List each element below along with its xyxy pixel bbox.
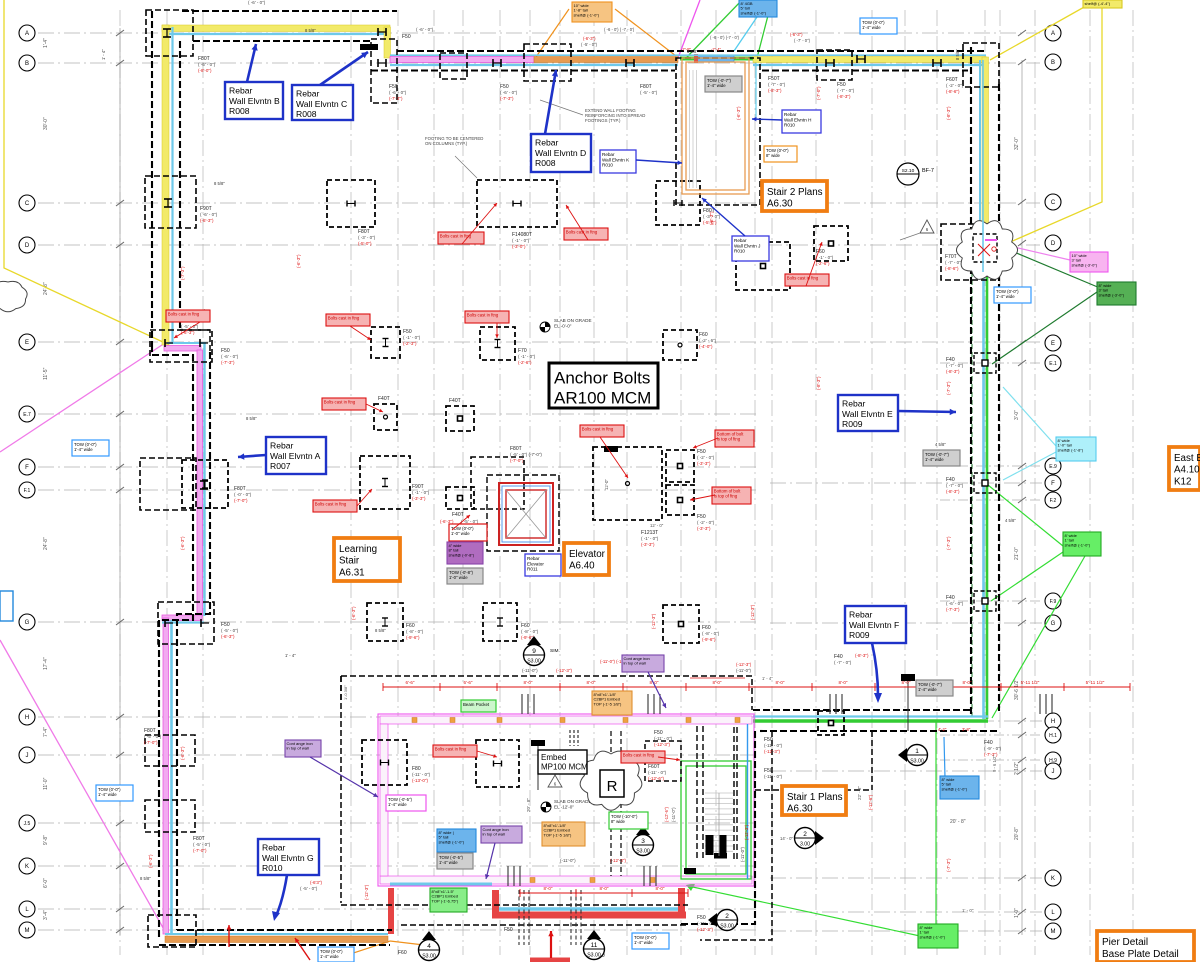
svg-text:R008: R008 — [229, 106, 250, 116]
svg-text:F40T: F40T — [452, 512, 464, 518]
svg-text:6'-0": 6'-0" — [43, 878, 49, 888]
svg-text:(-8'-3"): (-8'-3") — [837, 94, 851, 99]
svg-text:S2.10: S2.10 — [902, 168, 915, 174]
svg-text:11'-0": 11'-0" — [43, 777, 49, 790]
svg-text:Bolts cast in ftng: Bolts cast in ftng — [328, 316, 360, 321]
svg-text:R008: R008 — [296, 109, 317, 119]
svg-text:Elevator: Elevator — [527, 561, 544, 566]
svg-text:E.1: E.1 — [1049, 361, 1057, 367]
svg-text:TOP (-1'-6.75"): TOP (-1'-6.75") — [432, 898, 459, 903]
svg-text:Bolts cast in ftng: Bolts cast in ftng — [168, 312, 200, 317]
svg-text:S3.00: S3.00 — [422, 954, 436, 960]
svg-text:shelf@ (-3'-0"): shelf@ (-3'-0") — [1072, 262, 1098, 267]
svg-text:( -7' - 0"): ( -7' - 0") — [946, 363, 964, 368]
svg-text:(-8'-3"): (-8'-3") — [946, 106, 951, 120]
svg-text:TOP (-1'-5 1/8"): TOP (-1'-5 1/8") — [544, 832, 572, 837]
svg-text:F40T: F40T — [378, 396, 390, 402]
svg-text:(-6'-3"): (-6'-3") — [200, 218, 214, 223]
svg-text:Bolts cast in ftng: Bolts cast in ftng — [582, 427, 614, 432]
svg-text:F50: F50 — [504, 927, 513, 933]
svg-text:8'-0": 8'-0" — [713, 680, 722, 685]
svg-text:8'-0": 8'-0" — [544, 886, 553, 891]
svg-text:G: G — [1051, 621, 1056, 627]
svg-text:1'-4" wide: 1'-4" wide — [918, 687, 937, 692]
svg-text:(-8'-0"): (-8'-0") — [198, 68, 212, 73]
svg-text:EL -12'-0": EL -12'-0" — [554, 804, 574, 809]
svg-text:(-9'-6"): (-9'-6") — [406, 635, 420, 640]
svg-text:(-11' - 0"): (-11' - 0") — [648, 770, 667, 775]
svg-text:E.9: E.9 — [1049, 464, 1057, 470]
svg-text:shelf@ (-1'-0"): shelf@ (-1'-0") — [1065, 542, 1091, 547]
svg-text:(-12'-3"): (-12'-3") — [764, 749, 780, 754]
svg-text:20' - 8": 20' - 8" — [950, 819, 966, 825]
svg-text:F: F — [25, 465, 29, 471]
svg-text:6'-6": 6'-6" — [406, 680, 415, 685]
svg-text:Wall Elvntn G: Wall Elvntn G — [262, 853, 314, 863]
svg-text:(-8'-3"): (-8'-3") — [816, 376, 821, 390]
svg-text:20' - 8": 20' - 8" — [526, 798, 531, 812]
svg-text:Wall Elvntn K: Wall Elvntn K — [602, 157, 630, 162]
svg-text:( -1' - 0"): ( -1' - 0") — [816, 255, 834, 260]
svg-text:( -8' - 0"): ( -8' - 0") — [521, 629, 539, 634]
svg-text:( -3' - 0"): ( -3' - 0") — [358, 235, 376, 240]
svg-text:Bolts cast in ftng: Bolts cast in ftng — [467, 313, 499, 318]
svg-text:Anchor Bolts: Anchor Bolts — [554, 368, 650, 387]
svg-text:(-9'-6"): (-9'-6") — [702, 637, 716, 642]
svg-text:R010: R010 — [602, 163, 613, 168]
svg-text:Bolts cast in ftng: Bolts cast in ftng — [315, 502, 347, 507]
svg-text:shelf@ (-3'-0"): shelf@ (-3'-0") — [1099, 292, 1125, 297]
svg-text:Rebar: Rebar — [734, 238, 747, 243]
svg-text:A6.40: A6.40 — [569, 561, 595, 572]
svg-text:(-6'-3"): (-6'-3") — [148, 854, 153, 868]
svg-text:BF-7: BF-7 — [922, 168, 934, 174]
svg-text:(-7'-3"): (-7'-3") — [946, 536, 951, 550]
svg-text:(-11'-0"): (-11'-0") — [736, 668, 751, 673]
svg-text:Learning: Learning — [339, 544, 377, 555]
svg-text:(-11'-0"): (-11'-0") — [560, 858, 576, 863]
svg-text:(-12'-3"): (-12'-3") — [744, 824, 749, 840]
svg-text:3'-4": 3'-4" — [43, 910, 49, 920]
svg-text:(-6'-3"): (-6'-3") — [180, 536, 185, 550]
svg-text:is top of ftng: is top of ftng — [717, 437, 741, 442]
svg-text:1'-0": 1'-0" — [1014, 908, 1020, 918]
svg-text:(-3'-0"): (-3'-0") — [512, 244, 526, 249]
svg-text:FOOTINGS (TYP.): FOOTINGS (TYP.) — [585, 118, 621, 123]
svg-text:1'-4" wide: 1'-4" wide — [707, 83, 726, 88]
svg-text:(-5'-0"): (-5'-0") — [358, 241, 372, 246]
svg-text:C: C — [1051, 200, 1056, 206]
svg-text:8'-0": 8'-0" — [656, 886, 665, 891]
svg-text:1'-4" wide: 1'-4" wide — [634, 940, 653, 945]
svg-text:(-12'-3"): (-12'-3") — [364, 884, 369, 900]
svg-text:S3.00: S3.00 — [527, 659, 541, 665]
svg-text:(-8'-3"): (-8'-3") — [709, 211, 714, 225]
svg-text:1'-0 3/8": 1'-0 3/8" — [343, 685, 348, 700]
svg-text:(-12'-3"): (-12'-3") — [750, 604, 755, 620]
svg-text:J: J — [1052, 769, 1055, 775]
svg-text:ON COLUMNS (TYP.): ON COLUMNS (TYP.) — [425, 141, 468, 146]
svg-text:(-2'-6"): (-2'-6") — [816, 261, 830, 266]
svg-text:Bolts cast in ftng: Bolts cast in ftng — [324, 400, 356, 405]
svg-text:8'-0": 8'-0" — [902, 680, 911, 685]
svg-text:4: 4 — [427, 943, 431, 950]
svg-text:F40T: F40T — [449, 398, 461, 404]
svg-text:(-4'-0"): (-4'-0") — [699, 344, 713, 349]
svg-text:(-3'-3"): (-3'-3") — [697, 461, 711, 466]
svg-text:( -5' - 0"): ( -5' - 0") — [581, 42, 598, 47]
svg-text:12'-0": 12'-0" — [604, 479, 609, 490]
svg-text:( -6 - 0') ( -7 - 0'): ( -6 - 0') ( -7 - 0') — [604, 27, 635, 32]
svg-text:(-12'-6"): (-12'-6") — [868, 794, 873, 810]
svg-text:shelf@ (-0'-8"): shelf@ (-0'-8") — [449, 552, 475, 557]
svg-text:K: K — [25, 864, 29, 870]
svg-text:( -1' - 0"): ( -1' - 0") — [412, 490, 430, 495]
svg-text:MP100 MCM: MP100 MCM — [541, 762, 588, 771]
svg-text:R010: R010 — [262, 863, 283, 873]
svg-text:(-7'-3"): (-7'-3") — [500, 96, 514, 101]
svg-text:30'-6 1/2": 30'-6 1/2" — [1014, 679, 1020, 700]
svg-text:A6.31: A6.31 — [339, 567, 365, 578]
svg-text:(-8'-6"): (-8'-6") — [945, 266, 959, 271]
svg-text:(-7'-0"): (-7'-0") — [144, 740, 158, 745]
svg-text:Rebar: Rebar — [527, 556, 540, 561]
svg-text:S3.00: S3.00 — [587, 953, 601, 959]
svg-text:(-11' - 0"): (-11' - 0") — [764, 743, 783, 748]
svg-text:1'-4" wide: 1'-4" wide — [98, 792, 117, 797]
svg-text:R009: R009 — [849, 630, 870, 640]
svg-text:8 5/8": 8 5/8" — [246, 416, 257, 421]
svg-text:Stair: Stair — [339, 556, 360, 567]
svg-text:Rebar: Rebar — [270, 441, 294, 451]
svg-text:(-3'-3"): (-3'-3") — [412, 496, 426, 501]
svg-text:1' - 4": 1' - 4" — [762, 676, 773, 681]
svg-text:R009: R009 — [842, 419, 863, 429]
svg-text:(-13'-0"): (-13'-0") — [412, 778, 428, 783]
svg-text:B: B — [1051, 60, 1055, 66]
svg-text:Wall Elvntn A: Wall Elvntn A — [270, 451, 321, 461]
svg-text:Stair 2 Plans: Stair 2 Plans — [767, 187, 823, 198]
svg-text:F.1: F.1 — [24, 488, 31, 494]
svg-text:2: 2 — [725, 913, 729, 920]
svg-text:shelf@ (-4'-4"): shelf@ (-4'-4") — [1085, 1, 1111, 6]
svg-text:Pier Detail: Pier Detail — [1102, 937, 1148, 948]
svg-text:Beam Pocket: Beam Pocket — [463, 702, 490, 707]
svg-text:9: 9 — [532, 648, 536, 655]
svg-text:M: M — [1051, 929, 1056, 935]
svg-text:Rebar: Rebar — [842, 399, 866, 409]
svg-text:( -7' - 0"): ( -7' - 0") — [834, 660, 852, 665]
svg-text:(-12'-3"): (-12'-3") — [736, 662, 752, 667]
svg-text:TOP (-1'-5 1/8"): TOP (-1'-5 1/8") — [594, 701, 622, 706]
svg-text:E: E — [1051, 341, 1055, 347]
svg-text:1'-4" wide: 1'-4" wide — [439, 860, 458, 865]
svg-text:1'-4" wide: 1'-4" wide — [74, 447, 93, 452]
svg-text:R011: R011 — [527, 567, 538, 572]
svg-text:5'-11 1/2": 5'-11 1/2" — [1021, 680, 1040, 685]
svg-text:in top of wall: in top of wall — [624, 661, 646, 666]
svg-text:G: G — [25, 620, 30, 626]
svg-text:( -6' - 0"): ( -6' - 0") — [500, 90, 518, 95]
svg-text:(-6'-3"): (-6'-3") — [351, 606, 356, 620]
svg-text:E: E — [25, 340, 29, 346]
svg-text:( -5' - 0"): ( -5' - 0") — [300, 886, 318, 891]
svg-text:8 5/8": 8 5/8" — [955, 49, 960, 60]
svg-text:(-8'-6"): (-8'-6") — [946, 89, 960, 94]
svg-text:( -7' - 0"): ( -7' - 0") — [837, 88, 855, 93]
svg-text:in top of wall: in top of wall — [483, 832, 505, 837]
svg-text:(-12'-3"): (-12'-3") — [697, 927, 713, 932]
svg-text:1'-4" wide: 1'-4" wide — [862, 25, 881, 30]
svg-text:1'-4" wide: 1'-4" wide — [320, 954, 339, 959]
svg-text:(-8'-3"): (-8'-3") — [946, 369, 960, 374]
svg-text:8'-0": 8'-0" — [776, 680, 785, 685]
svg-text:(-7'-0"): (-7'-0") — [234, 498, 248, 503]
svg-text:shelf@ (-1'-8"): shelf@ (-1'-8") — [1058, 447, 1084, 452]
svg-text:24'-8": 24'-8" — [43, 537, 49, 550]
svg-text:5'-11 1/2": 5'-11 1/2" — [1086, 680, 1105, 685]
svg-text:Bolts cast in ftng: Bolts cast in ftng — [435, 747, 467, 752]
svg-text:H.1: H.1 — [1049, 733, 1057, 739]
svg-text:11'-5": 11'-5" — [43, 367, 49, 380]
svg-text:8 5/8": 8 5/8" — [375, 628, 386, 633]
svg-text:( -6' - 0"): ( -6' - 0") — [416, 27, 434, 32]
svg-text:9 - 6 1/2": 9 - 6 1/2" — [992, 755, 997, 772]
svg-text:R010: R010 — [784, 123, 795, 128]
svg-text:Base Plate Detail: Base Plate Detail — [1102, 949, 1179, 960]
svg-text:EL -0'-0": EL -0'-0" — [554, 323, 572, 328]
svg-text:(-7'-3"): (-7'-3") — [946, 858, 951, 872]
svg-text:(-7'-3"): (-7'-3") — [180, 266, 185, 280]
svg-text:3.00: 3.00 — [800, 842, 810, 848]
svg-text:(-7'-0"): (-7'-0") — [816, 86, 821, 100]
svg-text:East E: East E — [1174, 453, 1200, 464]
svg-text:M: M — [25, 928, 30, 934]
svg-text:( -6' - 0"): ( -6' - 0") — [248, 0, 266, 5]
svg-text:( -5' - 0"): ( -5' - 0") — [144, 734, 162, 739]
svg-text:1'-4" wide: 1'-4" wide — [388, 802, 407, 807]
svg-text:R010: R010 — [734, 249, 745, 254]
svg-text:H: H — [25, 715, 29, 721]
svg-text:is top of ftng: is top of ftng — [714, 494, 738, 499]
svg-text:(-12'-6"): (-12'-6") — [664, 807, 669, 822]
svg-text:1' - 4": 1' - 4" — [101, 49, 106, 60]
svg-text:(-12'-3"): (-12'-3") — [556, 668, 572, 673]
svg-text:Rebar: Rebar — [849, 610, 873, 620]
svg-text:(-7'-3"): (-7'-3") — [389, 96, 403, 101]
svg-text:K12: K12 — [1174, 476, 1191, 487]
svg-text:8 5/8": 8 5/8" — [140, 876, 151, 881]
svg-text:R008: R008 — [535, 158, 556, 168]
svg-text:( -5' - 0"): ( -5' - 0") — [193, 842, 211, 847]
svg-text:8 5/8": 8 5/8" — [687, 49, 698, 54]
svg-text:8'-0": 8'-0" — [600, 886, 609, 891]
svg-text:in top of wall: in top of wall — [287, 746, 309, 751]
svg-text:SIM.: SIM. — [550, 648, 560, 654]
svg-text:Rebar: Rebar — [784, 112, 797, 117]
svg-text:F: F — [1051, 481, 1055, 487]
svg-text:Rebar: Rebar — [229, 86, 253, 96]
svg-text:(-6'-3"): (-6'-3") — [736, 106, 741, 120]
svg-text:A6.30: A6.30 — [767, 199, 793, 210]
svg-text:S3.00: S3.00 — [910, 759, 924, 765]
svg-text:4 5/8": 4 5/8" — [935, 442, 946, 447]
svg-text:32'-0": 32'-0" — [1014, 137, 1020, 150]
svg-text:Wall Elvntn D: Wall Elvntn D — [535, 148, 586, 158]
svg-text:F.2: F.2 — [1050, 498, 1057, 504]
svg-text:( -2' - 6"): ( -2' - 6") — [699, 338, 717, 343]
svg-text:(-11'-0"): (-11'-0") — [671, 807, 676, 822]
svg-text:(-2'-6"): (-2'-6") — [518, 360, 532, 365]
svg-text:(-8'-3"): (-8'-3") — [855, 653, 869, 658]
svg-text:J.5: J.5 — [24, 821, 31, 827]
svg-text:D: D — [25, 243, 30, 249]
svg-text:(-8'-3"): (-8'-3") — [946, 489, 960, 494]
svg-text:SLAB ON GRADE: SLAB ON GRADE — [554, 318, 592, 323]
svg-text:(-6'-3"): (-6'-3") — [790, 32, 803, 37]
svg-text:8 5/8": 8 5/8" — [214, 181, 225, 186]
svg-text:(-8'-3"): (-8'-3") — [768, 88, 782, 93]
svg-text:Elevator: Elevator — [569, 549, 606, 560]
svg-text:(-11'-0"): (-11'-0") — [522, 668, 538, 673]
svg-text:A6.30: A6.30 — [787, 804, 813, 815]
svg-text:(-12'-3"): (-12'-3") — [654, 742, 670, 747]
svg-text:S3.00: S3.00 — [636, 849, 650, 855]
svg-text:( -7' - 0"): ( -7' - 0") — [768, 82, 786, 87]
svg-text:1' - 4": 1' - 4" — [285, 653, 296, 658]
svg-text:Rebar: Rebar — [296, 89, 320, 99]
svg-text:4 5/8": 4 5/8" — [1005, 518, 1016, 523]
svg-text:shelf@ (-1'-0"): shelf@ (-1'-0") — [741, 10, 767, 15]
svg-text:21'-0": 21'-0" — [1014, 547, 1020, 560]
svg-text:17'-4": 17'-4" — [43, 657, 49, 670]
svg-text:D: D — [1051, 241, 1056, 247]
svg-text:(-12'-6"): (-12'-6") — [648, 776, 664, 781]
svg-text:shelf@ (-1'-0"): shelf@ (-1'-0") — [439, 839, 465, 844]
svg-text:(-6'-3"): (-6'-3") — [221, 634, 235, 639]
svg-text:(-6'3"): (-6'3") — [310, 880, 322, 885]
svg-text:-7'-4": -7'-4" — [711, 47, 721, 52]
svg-text:E.7: E.7 — [23, 412, 31, 418]
svg-text:Wall Elvntn E: Wall Elvntn E — [842, 409, 893, 419]
svg-text:( -2' - 0"): ( -2' - 0") — [946, 83, 964, 88]
svg-text:S3.00: S3.00 — [720, 924, 734, 930]
svg-text:shelf@ (-1'-0"): shelf@ (-1'-0") — [920, 934, 946, 939]
svg-text:(-7'-3"): (-7'-3") — [221, 360, 235, 365]
svg-text:( -5' - 0"): ( -5' - 0") — [221, 628, 239, 633]
svg-text:( -6' - 0"): ( -6' - 0") — [221, 354, 239, 359]
svg-text:6'-6": 6'-6" — [464, 680, 473, 685]
svg-text:(-11' - 0"): (-11' - 0") — [764, 774, 783, 779]
svg-text:(-12'-3"): (-12'-3") — [651, 613, 656, 629]
svg-text:11: 11 — [591, 942, 598, 949]
svg-text:( -8' - 0"): ( -8' - 0") — [406, 629, 424, 634]
svg-text:( -8' - 0"): ( -8' - 0") — [702, 631, 720, 636]
svg-text:(-6'-3"): (-6'-3") — [440, 519, 454, 524]
svg-text:( -1' - 0"): ( -1' - 0") — [403, 335, 421, 340]
svg-text:shelf@ (-1'-0"): shelf@ (-1'-0") — [574, 12, 600, 17]
svg-text:H: H — [1051, 719, 1055, 725]
svg-text:R: R — [607, 778, 618, 795]
svg-text:( -0' - 0"): ( -0' - 0") — [234, 492, 252, 497]
svg-text:1'-4" wide: 1'-4" wide — [996, 294, 1015, 299]
svg-text:( -1' - 0"): ( -1' - 0") — [512, 238, 530, 243]
svg-text:Wall Elvntn J: Wall Elvntn J — [734, 243, 760, 248]
svg-text:9'-8": 9'-8" — [43, 835, 49, 845]
svg-text:(-7'-3"): (-7'-3") — [946, 381, 951, 395]
svg-text:Rebar: Rebar — [535, 138, 559, 148]
svg-text:2: 2 — [803, 831, 807, 838]
svg-text:Embed: Embed — [541, 753, 566, 762]
svg-text:(-6'-3"): (-6'-3") — [296, 254, 301, 268]
svg-text:8'-0": 8'-0" — [963, 680, 972, 685]
svg-text:J: J — [26, 753, 29, 759]
svg-text:1'-0" wide: 1'-0" wide — [449, 575, 468, 580]
svg-text:( -7' - 0"): ( -7' - 0") — [945, 260, 963, 265]
svg-text:(-6'-3"): (-6'-3") — [583, 36, 596, 41]
svg-text:A4.10: A4.10 — [1174, 465, 1200, 476]
svg-text:( -6' - 0"): ( -6' - 0") — [946, 601, 964, 606]
svg-text:8'-0": 8'-0" — [524, 680, 533, 685]
svg-text:( -7' - 0"): ( -7' - 0") — [794, 38, 811, 43]
svg-text:8" wide: 8" wide — [611, 819, 626, 824]
svg-text:F50: F50 — [402, 34, 411, 40]
svg-text:(-3'-3"): (-3'-3") — [641, 542, 655, 547]
svg-text:( -6' - 0"): ( -6' - 0") — [389, 90, 407, 95]
svg-text:1'-4": 1'-4" — [43, 38, 49, 48]
svg-text:1' - 0": 1' - 0" — [962, 908, 974, 913]
svg-text:8'-0": 8'-0" — [587, 680, 596, 685]
svg-text:Stair 1 Plans: Stair 1 Plans — [787, 792, 843, 803]
svg-text:SLAB ON GRADE: SLAB ON GRADE — [554, 799, 592, 804]
svg-text:( -9' - 0"): ( -9' - 0") — [984, 746, 1002, 751]
svg-text:8'-0": 8'-0" — [839, 680, 848, 685]
svg-text:3: 3 — [641, 838, 645, 845]
svg-text:30'-0": 30'-0" — [43, 117, 49, 130]
svg-text:( -1' - 0"): ( -1' - 0") — [518, 354, 536, 359]
svg-text:( -6 - 0') (-7 - 0'): ( -6 - 0') (-7 - 0') — [710, 35, 740, 40]
svg-text:(-7'-3"): (-7'-3") — [946, 607, 960, 612]
svg-text:1: 1 — [915, 748, 919, 755]
svg-text:shelf@ (-1'-0"): shelf@ (-1'-0") — [942, 786, 968, 791]
svg-text:( -6' - 0"): ( -6' - 0") — [198, 62, 216, 67]
svg-text:Bolts cast in ftng: Bolts cast in ftng — [787, 276, 819, 281]
svg-text:A: A — [25, 31, 29, 37]
svg-text:( -6' - 0"): ( -6' - 0") — [200, 212, 218, 217]
svg-text:Rebar: Rebar — [602, 152, 615, 157]
svg-text:( -2' - 0"): ( -2' - 0") — [697, 455, 715, 460]
svg-text:C: C — [25, 201, 30, 207]
svg-text:1'-0" wide: 1'-0" wide — [451, 531, 470, 536]
svg-text:3'-8": 3'-8" — [962, 727, 971, 732]
svg-text:R007: R007 — [270, 461, 291, 471]
svg-text:(-11' - 0"): (-11' - 0") — [654, 736, 673, 741]
svg-text:(-7'-0"): (-7'-0") — [510, 458, 524, 463]
svg-text:(-2'-3"): (-2'-3") — [403, 341, 417, 346]
svg-text:K: K — [1051, 876, 1055, 882]
svg-text:(-12'-3"): (-12'-3") — [610, 858, 626, 863]
svg-text:( -7' - 0"): ( -7' - 0") — [946, 483, 964, 488]
svg-text:F60: F60 — [398, 950, 407, 956]
svg-text:Wall Elvntn C: Wall Elvntn C — [296, 99, 347, 109]
svg-text:3'-0": 3'-0" — [1014, 410, 1020, 420]
svg-text:(-3'-3"): (-3'-3") — [697, 526, 711, 531]
svg-text:Rebar: Rebar — [262, 843, 286, 853]
svg-text:F.9: F.9 — [1050, 599, 1057, 605]
svg-text:7'-4": 7'-4" — [43, 727, 49, 737]
svg-text:Wall Elvntn H: Wall Elvntn H — [784, 117, 811, 122]
svg-text:20'-8": 20'-8" — [1014, 827, 1020, 840]
